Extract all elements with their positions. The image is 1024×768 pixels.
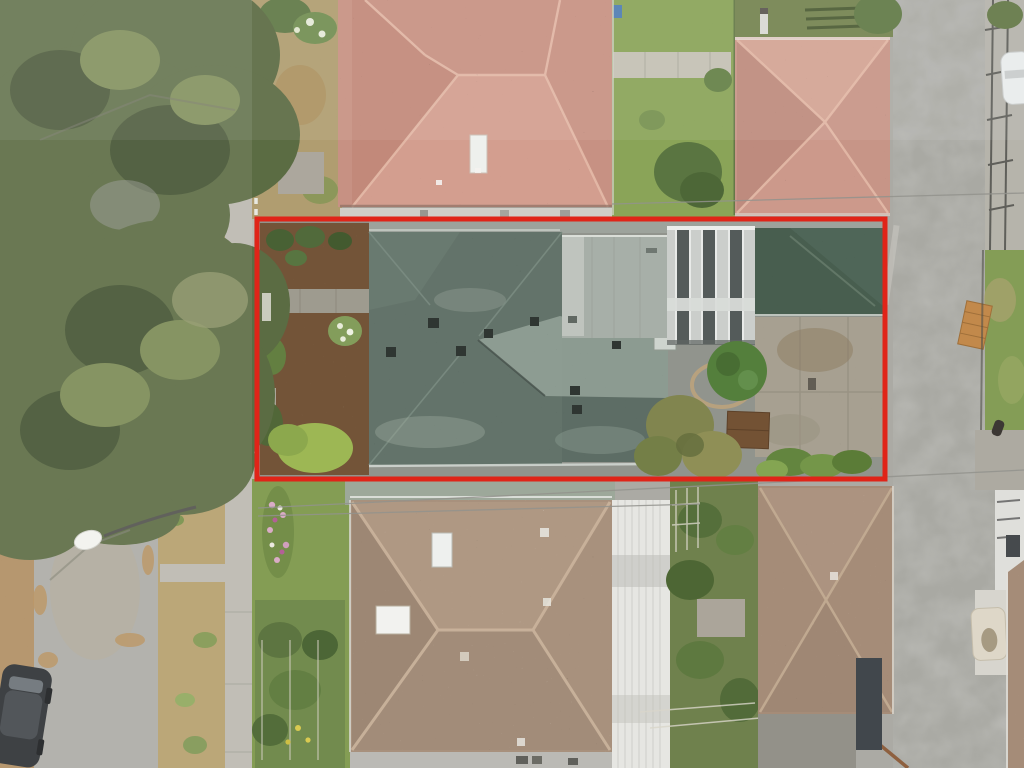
haze-global: [0, 0, 1024, 768]
aerial-photo-canvas: [0, 0, 1024, 768]
aerial-photo: [0, 0, 1024, 768]
